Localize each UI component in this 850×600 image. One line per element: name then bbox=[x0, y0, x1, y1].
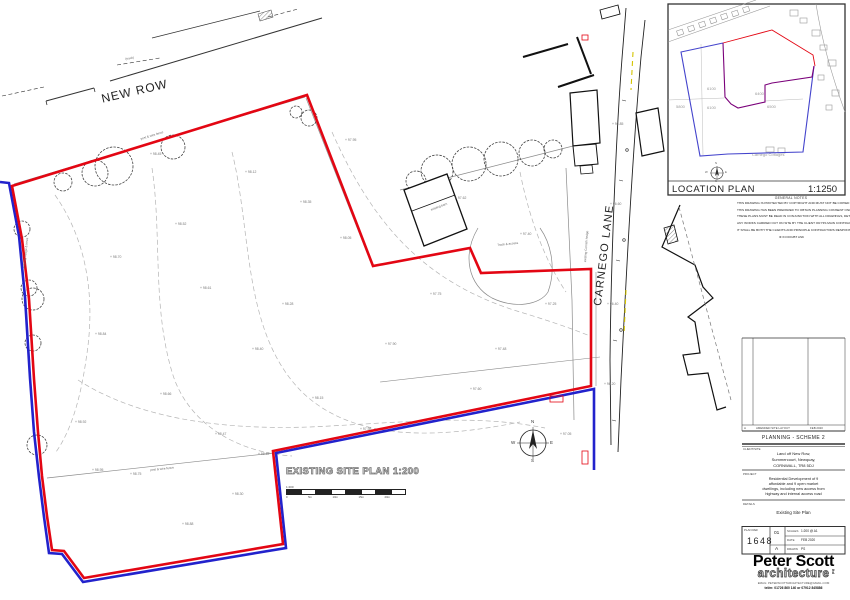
titleblock-rules bbox=[742, 338, 845, 554]
spot-level: + 98.28 bbox=[282, 302, 293, 306]
revision-desc: AMENDED SITE LAYOUT bbox=[756, 426, 790, 430]
site-boundary-red bbox=[12, 95, 591, 578]
note-paragraph: THIS DRAWING IS PROTECTED BY COPYRIGHT A… bbox=[737, 202, 846, 206]
spot-level: + 97.95 bbox=[345, 138, 356, 142]
spot-level: + 98.40 bbox=[252, 347, 263, 351]
spot-level: + 97.90 bbox=[385, 342, 396, 346]
spot-level: + 98.30 bbox=[232, 492, 243, 496]
revision-letter: A bbox=[744, 426, 746, 430]
parcel-label: 6400 bbox=[755, 91, 764, 96]
note-paragraph: THIS DRAWING HAS BEEN PREPARED TO OBTAIN… bbox=[737, 209, 846, 213]
spot-level: + 98.92 bbox=[75, 420, 86, 424]
rev-letter: A bbox=[775, 547, 778, 552]
mini-compass-s: S bbox=[715, 179, 717, 183]
tree-canopies bbox=[14, 106, 562, 455]
logo-architecture: architecture bbox=[742, 568, 845, 580]
contour-lines bbox=[55, 132, 590, 456]
compass-e-label: E bbox=[550, 440, 553, 445]
spot-level: + 97.62 bbox=[455, 196, 466, 200]
logo-ltd: ltd bbox=[831, 569, 836, 574]
scale-tick: 0 bbox=[286, 495, 288, 499]
project-label: PROJECT bbox=[743, 472, 757, 476]
note-paragraph: ANY WORKS CARRIED OUT ON SITE BY THE CLI… bbox=[737, 222, 846, 226]
scale-tick: 5m bbox=[308, 495, 312, 499]
details-label: DETAILS bbox=[743, 502, 755, 506]
scale-bar-ticks: 0 5m 10m 15m 20m bbox=[286, 495, 390, 499]
spot-level: + 98.62 bbox=[258, 452, 269, 456]
parcel-label: 6500 bbox=[767, 104, 776, 109]
details-value: Existing Site Plan bbox=[742, 510, 845, 515]
drawing-sheet: NEW ROW CARNEGO LANE EXISTING SITE PLAN … bbox=[0, 0, 850, 600]
stage-title: PLANNING - SCHEME 2 bbox=[742, 435, 845, 441]
plan-title: EXISTING SITE PLAN 1:200 bbox=[286, 466, 419, 477]
spot-level: + 98.61 bbox=[200, 286, 211, 290]
spot-level: + 98.52 bbox=[175, 222, 186, 226]
logo-phone: tel/m: 01726 860 140 or 07912 845886 bbox=[742, 586, 845, 590]
issue-number: 01 bbox=[774, 531, 779, 536]
spot-level: + 97.25 bbox=[545, 302, 556, 306]
scale-tick: 15m bbox=[359, 495, 364, 499]
spot-level: + 98.12 bbox=[245, 170, 256, 174]
if-in-doubt-ask: IF IN DOUBT ASK bbox=[737, 236, 846, 240]
location-plan-scale: 1:1250 bbox=[808, 184, 837, 195]
parcel-label: 5800 bbox=[676, 104, 685, 109]
parcel-label: 6100 bbox=[707, 86, 716, 91]
spot-level: + 98.45 bbox=[150, 152, 161, 156]
north-compass bbox=[517, 427, 549, 459]
compass-n-label: N bbox=[531, 419, 534, 424]
project-line: highway and internal access road bbox=[742, 492, 845, 497]
mini-compass-w: W bbox=[705, 170, 708, 174]
spot-level: + 98.66 bbox=[160, 392, 171, 396]
location-plan-title: LOCATION PLAN bbox=[672, 184, 755, 195]
parcel-label: 6100 bbox=[707, 105, 716, 110]
date-value: FEB 2020 bbox=[801, 538, 815, 542]
scales-label: SCALES bbox=[787, 529, 798, 533]
drawn-value: PS bbox=[801, 547, 805, 551]
spot-level: + 98.15 bbox=[312, 396, 323, 400]
general-notes: THIS DRAWING IS PROTECTED BY COPYRIGHT A… bbox=[737, 202, 846, 243]
spot-level: + 97.98 bbox=[360, 427, 371, 431]
revision-date: FEB 2020 bbox=[810, 426, 823, 430]
plan-ref-label: PLAN REF bbox=[744, 528, 758, 532]
spot-level: + 97.05 bbox=[560, 432, 571, 436]
general-notes-header: GENERAL NOTES bbox=[737, 196, 845, 200]
scales-value: 1:200 @ A1 bbox=[801, 529, 818, 533]
spot-level: + 98.88 bbox=[182, 522, 193, 526]
spot-level: + 98.95 bbox=[92, 468, 103, 472]
spot-level: + 96.60 bbox=[610, 202, 621, 206]
spot-level: + 97.48 bbox=[495, 347, 506, 351]
spot-level: + 98.05 bbox=[340, 236, 351, 240]
spot-level: + 97.40 bbox=[520, 232, 531, 236]
spot-level: + 96.40 bbox=[607, 302, 618, 306]
date-label: DATE bbox=[787, 538, 795, 542]
note-paragraph: THESE PLANS MUST BE READ IN CONJUNCTION … bbox=[737, 215, 846, 219]
client-line: CORNWALL, TR8 5DJ bbox=[742, 463, 845, 469]
spot-level: + 98.70 bbox=[110, 255, 121, 259]
fence-lines bbox=[14, 97, 600, 478]
plan-ref-number: 1648 bbox=[747, 536, 773, 546]
spot-level: + 98.75 bbox=[130, 472, 141, 476]
project-description: Residential Development of 9 affordable … bbox=[742, 477, 845, 498]
scale-tick: 20m bbox=[385, 495, 390, 499]
mini-compass-n: N bbox=[715, 161, 717, 165]
spot-level: + 97.60 bbox=[470, 387, 481, 391]
spot-level: + 96.85 bbox=[612, 122, 623, 126]
parcel-label: Carnego Cottages bbox=[752, 152, 784, 157]
location-plan-inset bbox=[668, 0, 845, 195]
compass-s-label: S bbox=[531, 458, 534, 463]
spot-level: + 97.75 bbox=[430, 292, 441, 296]
logo-email: EMAIL: PETERSCOTTARCHITECTURE@GMAIL.COM bbox=[742, 581, 845, 585]
spot-level: + 98.35 bbox=[300, 200, 311, 204]
spot-level: + 98.84 bbox=[95, 332, 106, 336]
drawn-label: DRAWN bbox=[787, 547, 798, 551]
note-paragraph: IT SHALL BE BOTH THE CLIENTS AND PRINCIP… bbox=[737, 229, 846, 233]
scale-tick: 10m bbox=[333, 495, 338, 499]
scale-bar: 1:200 0 5m 10m 15m 20m bbox=[286, 485, 406, 499]
compass-w-label: W bbox=[511, 440, 515, 445]
mini-compass-e: E bbox=[725, 170, 727, 174]
spot-level: + 96.20 bbox=[604, 382, 615, 386]
spot-level: + 98.47 bbox=[215, 432, 226, 436]
client-address: Land off New Row, Summercourt, Newquay, … bbox=[742, 451, 845, 468]
